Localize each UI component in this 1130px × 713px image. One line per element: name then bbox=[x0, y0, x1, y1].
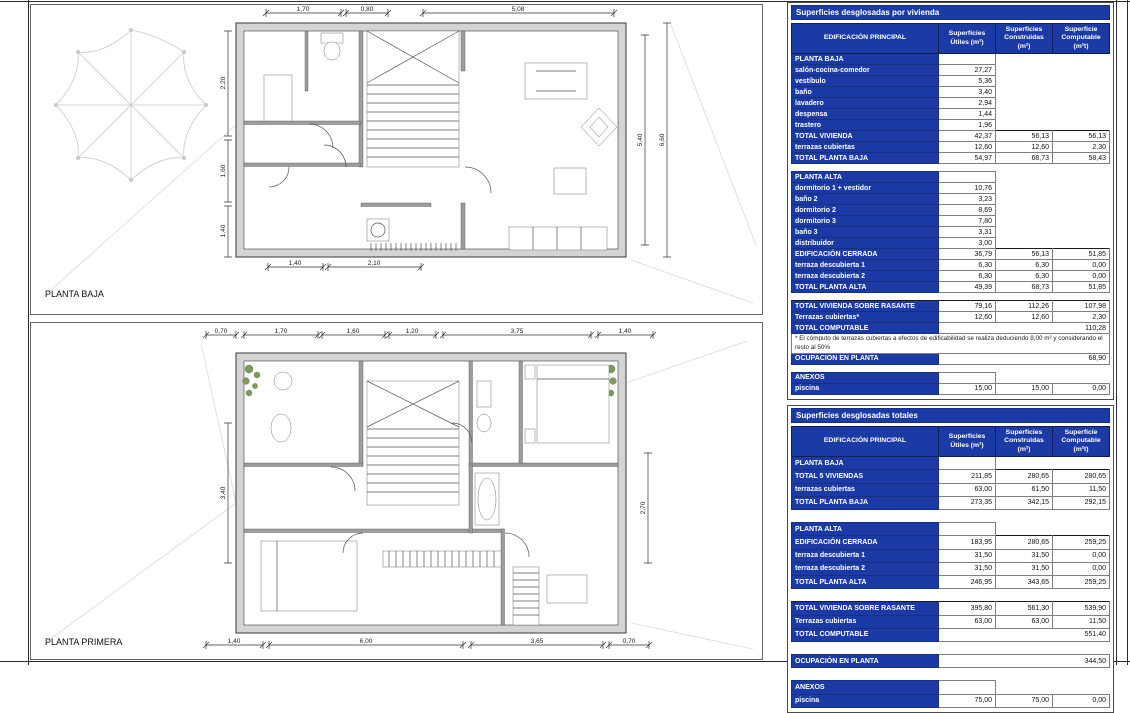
table-row-total: TOTAL VIVIENDA42,3756,1356,13 bbox=[792, 131, 1110, 142]
svg-text:2,20: 2,20 bbox=[220, 76, 227, 89]
sheet-border-left bbox=[28, 0, 29, 665]
staircase bbox=[367, 31, 459, 167]
svg-text:1,40: 1,40 bbox=[220, 224, 227, 237]
table-row-data: salón-cocina-comedor27,27 bbox=[792, 65, 1110, 76]
svg-text:0,70: 0,70 bbox=[215, 328, 228, 335]
svg-text:1,70: 1,70 bbox=[275, 328, 288, 335]
wardrobe-strip bbox=[383, 551, 501, 567]
table-row-data: trastero1,96 bbox=[792, 120, 1110, 131]
table-row-spacer bbox=[792, 641, 1110, 654]
table-row-data: piscina15,0015,000,00 bbox=[792, 383, 1110, 394]
svg-text:6,00: 6,00 bbox=[360, 638, 373, 645]
svg-text:1,20: 1,20 bbox=[406, 328, 419, 335]
table-row-wide: TOTAL COMPUTABLE551,40 bbox=[792, 628, 1110, 641]
sheet-border-right-inner bbox=[1116, 0, 1117, 665]
column-header: Superficies Útiles (m²) bbox=[939, 426, 996, 456]
table-row-data: terraza descubierta 231,5031,500,00 bbox=[792, 562, 1110, 575]
table-row-wide: TOTAL COMPUTABLE110,28 bbox=[792, 323, 1110, 334]
table-row-spacer bbox=[792, 164, 1110, 172]
table-row-spacer bbox=[792, 364, 1110, 372]
column-header: EDIFICACIÓN PRINCIPAL bbox=[792, 24, 939, 54]
table-row-data: baño3,40 bbox=[792, 87, 1110, 98]
svg-text:1,40: 1,40 bbox=[619, 328, 632, 335]
table-row-total: TOTAL PLANTA BAJA54,9768,7358,43 bbox=[792, 153, 1110, 164]
svg-text:5,40: 5,40 bbox=[637, 133, 644, 146]
staircase bbox=[367, 381, 459, 505]
table-row-data: Terrazas cubiertas63,0063,0011,50 bbox=[792, 615, 1110, 628]
column-header: Superficie Computable (m²t) bbox=[1053, 24, 1110, 54]
svg-text:1,40: 1,40 bbox=[289, 260, 302, 267]
table-row-section: PLANTA BAJA bbox=[792, 54, 1110, 65]
table-row-spacer bbox=[792, 589, 1110, 602]
bed-icon bbox=[525, 365, 609, 443]
table-row-total: TOTAL VIVIENDA SOBRE RASANTE395,80561,30… bbox=[792, 602, 1110, 615]
drawing-sheet: { "plans": { "planta_baja": { "label": "… bbox=[0, 0, 1130, 665]
table-row-total: TOTAL VIVIENDA SOBRE RASANTE79,16112,261… bbox=[792, 301, 1110, 312]
surface-table-totales: EDIFICACIÓN PRINCIPALSuperficies Útiles … bbox=[791, 426, 1110, 708]
column-header: Superficies Construidas (m²) bbox=[996, 24, 1053, 54]
table-header-row: EDIFICACIÓN PRINCIPALSuperficies Útiles … bbox=[792, 24, 1110, 54]
svg-text:3,40: 3,40 bbox=[220, 486, 227, 499]
surface-tables-column: Superficies desglosadas por vivienda EDI… bbox=[787, 2, 1114, 713]
svg-text:2,70: 2,70 bbox=[640, 501, 647, 514]
table-row-data: terraza descubierta 16,306,300,00 bbox=[792, 260, 1110, 271]
table-row-total: TOTAL 5 VIVIENDAS211,85280,65280,65 bbox=[792, 470, 1110, 483]
table-row-section: PLANTA BAJA bbox=[792, 457, 1110, 470]
table-row-total: EDIFICACIÓN CERRADA36,7956,1351,85 bbox=[792, 249, 1110, 260]
table-row-data: terrazas cubiertas12,6012,602,30 bbox=[792, 142, 1110, 153]
table-row-data: dormitorio 37,80 bbox=[792, 216, 1110, 227]
table-row-data: dormitorio 1 + vestidor10,76 bbox=[792, 183, 1110, 194]
floorplan-panel-planta-baja: 1,70 0,80 5,08 1,40 2,10 2,20 1,60 1,40 … bbox=[30, 4, 763, 315]
svg-text:1,60: 1,60 bbox=[220, 164, 227, 177]
table-row-data: Terrazas cubiertas*12,6012,602,30 bbox=[792, 312, 1110, 323]
table-row-spacer bbox=[792, 668, 1110, 681]
table-header-row: EDIFICACIÓN PRINCIPALSuperficies Útiles … bbox=[792, 426, 1110, 456]
table-row-spacer bbox=[792, 293, 1110, 301]
column-header: Superficies Construidas (m²) bbox=[996, 426, 1053, 456]
table-row-data: dormitorio 28,69 bbox=[792, 205, 1110, 216]
svg-text:0,80: 0,80 bbox=[361, 6, 374, 13]
table-row-data: distribuidor3,00 bbox=[792, 238, 1110, 249]
column-header: Superficie Computable (m²t) bbox=[1053, 426, 1110, 456]
sheet-border-right-outer bbox=[1127, 0, 1128, 665]
table-row-data: terraza descubierta 131,5031,500,00 bbox=[792, 549, 1110, 562]
plan-title-planta-primera: PLANTA PRIMERA bbox=[45, 637, 122, 647]
table-row-total: TOTAL PLANTA ALTA49,3968,7351,85 bbox=[792, 282, 1110, 293]
table-row-data: piscina75,0075,000,00 bbox=[792, 694, 1110, 707]
svg-text:0,70: 0,70 bbox=[623, 638, 636, 645]
table-row-wide: OCUPACIÓN EN PLANTA68,90 bbox=[792, 353, 1110, 364]
table-row-total: TOTAL PLANTA ALTA246,95343,65259,25 bbox=[792, 575, 1110, 588]
svg-text:6,60: 6,60 bbox=[659, 133, 666, 146]
table-row-note: * El cómputo de terrazas cubiertas a efe… bbox=[792, 334, 1110, 353]
floorplan-drawing-planta-baja: 1,70 0,80 5,08 1,40 2,10 2,20 1,60 1,40 … bbox=[31, 5, 760, 312]
svg-text:1,40: 1,40 bbox=[228, 638, 241, 645]
floorplan-drawing-planta-primera: 0,70 1,70 1,60 1,20 3,75 1,40 1,40 6,00 … bbox=[31, 323, 760, 657]
table-box-totales: Superficies desglosadas totales EDIFICAC… bbox=[787, 405, 1114, 713]
table-row-section: PLANTA ALTA bbox=[792, 172, 1110, 183]
table-title-per-vivienda: Superficies desglosadas por vivienda bbox=[791, 5, 1110, 20]
table-row-section: ANEXOS bbox=[792, 372, 1110, 383]
table-row-data: vestíbulo5,36 bbox=[792, 76, 1110, 87]
bed-icon bbox=[261, 541, 357, 611]
table-row-total: EDIFICACIÓN CERRADA183,95280,65259,25 bbox=[792, 536, 1110, 549]
table-row-total: TOTAL PLANTA BAJA273,35342,15292,15 bbox=[792, 496, 1110, 509]
svg-text:3,65: 3,65 bbox=[531, 638, 544, 645]
tree-icon bbox=[54, 28, 207, 181]
column-header: EDIFICACIÓN PRINCIPAL bbox=[792, 426, 939, 456]
table-row-data: baño 33,31 bbox=[792, 227, 1110, 238]
table-row-wide: OCUPACIÓN EN PLANTA344,50 bbox=[792, 655, 1110, 668]
footnote: * El cómputo de terrazas cubiertas a efe… bbox=[792, 334, 1110, 353]
plan-title-planta-baja: PLANTA BAJA bbox=[45, 289, 104, 299]
svg-text:5,08: 5,08 bbox=[512, 6, 525, 13]
table-row-data: despensa1,44 bbox=[792, 109, 1110, 120]
svg-text:1,70: 1,70 bbox=[297, 6, 310, 13]
table-row-data: baño 23,23 bbox=[792, 194, 1110, 205]
column-header: Superficies Útiles (m²) bbox=[939, 24, 996, 54]
svg-text:1,60: 1,60 bbox=[347, 328, 360, 335]
floorplan-panel-planta-primera: 0,70 1,70 1,60 1,20 3,75 1,40 1,40 6,00 … bbox=[30, 322, 763, 660]
svg-text:2,10: 2,10 bbox=[368, 260, 381, 267]
table-row-spacer bbox=[792, 510, 1110, 523]
table-row-section: ANEXOS bbox=[792, 681, 1110, 694]
surface-table-per-vivienda: EDIFICACIÓN PRINCIPALSuperficies Útiles … bbox=[791, 23, 1110, 395]
table-box-per-vivienda: Superficies desglosadas por vivienda EDI… bbox=[787, 2, 1114, 400]
table-row-data: terrazas cubiertas63,0061,5011,50 bbox=[792, 483, 1110, 496]
table-row-data: terraza descubierta 26,306,300,00 bbox=[792, 271, 1110, 282]
table-title-totales: Superficies desglosadas totales bbox=[791, 408, 1110, 423]
svg-text:3,75: 3,75 bbox=[511, 328, 524, 335]
table-row-section: PLANTA ALTA bbox=[792, 523, 1110, 536]
table-row-data: lavadero2,94 bbox=[792, 98, 1110, 109]
